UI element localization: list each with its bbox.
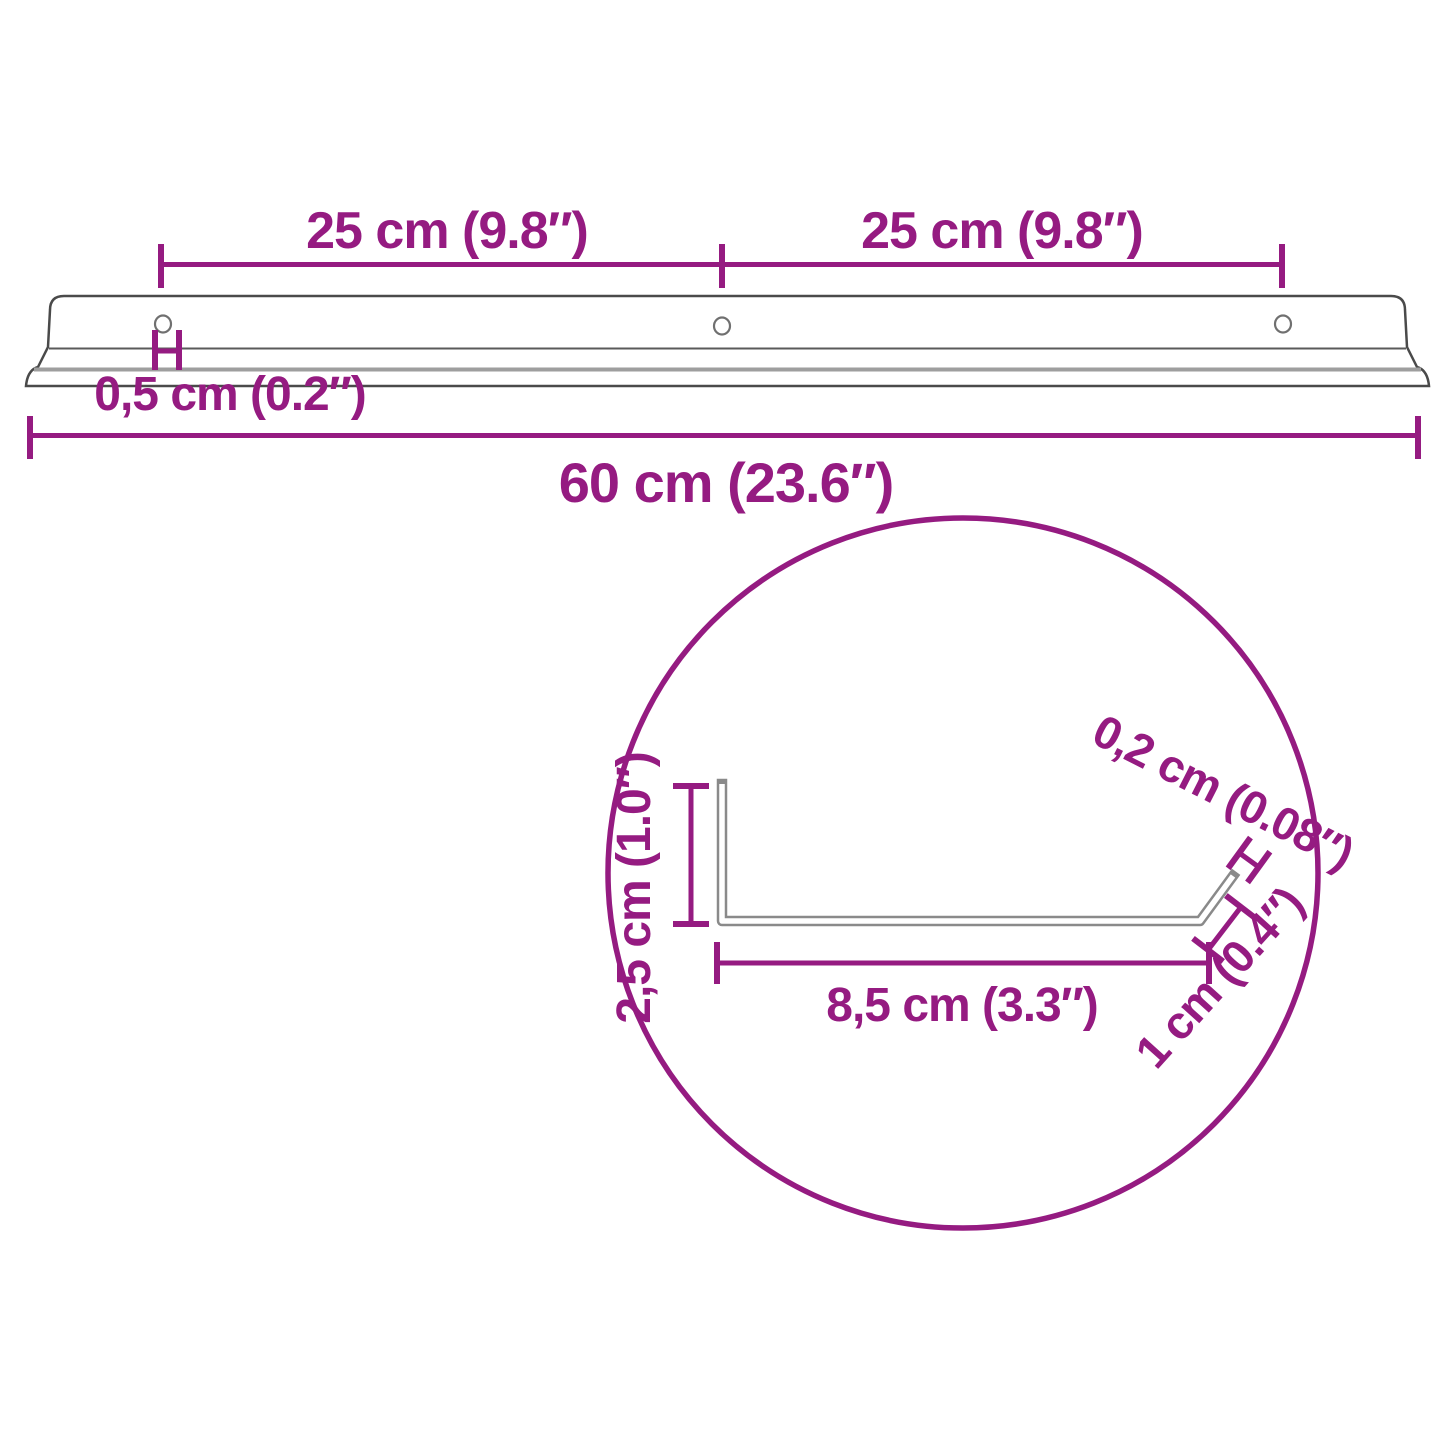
screw-hole-middle: [714, 318, 730, 335]
total-length-label: 60 cm (23.6″): [559, 451, 893, 514]
span-left-label: 25 cm (9.8″): [306, 202, 588, 260]
span-right-label: 25 cm (9.8″): [861, 202, 1143, 260]
height-label: 2,5 cm (1.0″): [608, 752, 661, 1023]
detail-circle: 2,5 cm (1.0″) 8,5 cm (3.3″) 1 cm (0.4″): [608, 518, 1362, 1228]
detail-circle-outline: [608, 518, 1318, 1228]
screw-hole-left: [155, 316, 171, 333]
total-length-dimension: 60 cm (23.6″): [30, 416, 1418, 514]
shelf-dimension-diagram: 25 cm (9.8″) 25 cm (9.8″) 0,5 cm (0.2″) …: [0, 0, 1445, 1445]
screw-hole-right: [1275, 316, 1291, 333]
ledge-gap-label: 0,5 cm (0.2″): [94, 368, 365, 421]
top-span-dimension: 25 cm (9.8″) 25 cm (9.8″): [161, 202, 1282, 288]
depth-label: 8,5 cm (3.3″): [826, 979, 1097, 1032]
diagram-canvas: 25 cm (9.8″) 25 cm (9.8″) 0,5 cm (0.2″) …: [0, 0, 1445, 1445]
